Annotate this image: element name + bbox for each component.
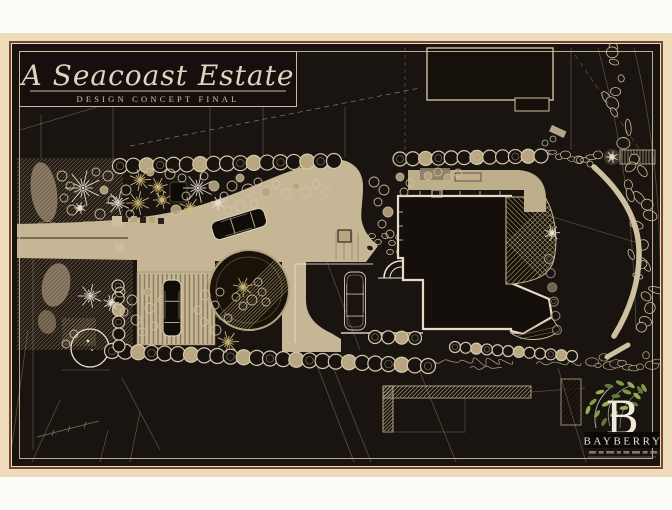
tree-center <box>242 286 244 288</box>
shrub-circle <box>209 181 219 191</box>
hedge-shrub <box>193 157 208 172</box>
hedge-shrub <box>419 151 433 165</box>
tree-center <box>82 187 84 189</box>
hedge-shrub <box>546 269 555 278</box>
hedge-shrub <box>545 255 554 264</box>
hedge-shrub <box>112 304 124 316</box>
shrub-circle <box>292 182 300 190</box>
tree-center <box>551 232 553 234</box>
hedge-shrub <box>395 331 408 344</box>
hedge-shrub <box>471 343 482 354</box>
site-plan-svg: A Seacoast Estate DESIGN CONCEPT FINAL B… <box>0 0 672 510</box>
car-body <box>163 280 181 336</box>
tree-center <box>157 186 159 188</box>
tagline-mark <box>623 451 629 454</box>
hedge-shrub <box>126 158 141 173</box>
hedge-shrub <box>431 151 445 165</box>
hedge-shrub <box>444 151 458 165</box>
tree-center <box>197 187 199 189</box>
hedge-shrub <box>393 152 407 166</box>
hedge-shrub <box>545 349 556 360</box>
hedge-shrub <box>548 283 557 292</box>
hedge-shrub <box>286 154 301 169</box>
shrub-circle <box>146 168 154 176</box>
hedge-shrub <box>369 331 382 344</box>
stone <box>374 239 381 245</box>
hedge-shrub <box>300 154 315 169</box>
tagline-mark <box>606 451 614 454</box>
hedge-shrub <box>503 346 514 357</box>
shrub-circle <box>261 187 271 197</box>
hedge-shrub <box>553 326 562 335</box>
shrub-circle <box>236 174 244 182</box>
neighbor-shed <box>561 379 581 425</box>
hedge-shrub <box>457 151 471 165</box>
hedge-shrub <box>513 346 524 357</box>
hedge-shrub <box>450 342 461 353</box>
tagline-mark <box>650 451 657 454</box>
tree-center <box>110 302 112 304</box>
plan-subtitle: DESIGN CONCEPT FINAL <box>76 94 239 104</box>
shrub-circle <box>144 288 152 296</box>
tree-center <box>217 202 219 204</box>
hedge-shrub <box>470 150 484 164</box>
paver-square <box>112 216 123 227</box>
hedge-shrub <box>327 154 342 169</box>
car-icon <box>163 280 181 336</box>
rock <box>636 364 643 370</box>
tree-center <box>189 207 191 209</box>
hedge-shrub <box>460 342 471 353</box>
hedge-shrub <box>508 150 522 164</box>
plan-title: A Seacoast Estate <box>19 59 295 92</box>
tree-center <box>161 199 163 201</box>
hedge-shrub <box>113 328 125 340</box>
rock <box>593 151 602 159</box>
hedge-shrub <box>551 311 560 320</box>
hedge-shrub <box>481 344 492 355</box>
shrub-circle <box>396 173 404 181</box>
hedge-shrub <box>535 348 546 359</box>
tree-center <box>139 179 141 181</box>
hedge-shrub <box>409 332 422 345</box>
hedge-shrub <box>112 280 124 292</box>
hedge-shrub <box>233 156 248 171</box>
hedge-shrub <box>260 155 275 170</box>
tagline-mark <box>632 451 640 454</box>
hedge-shrub <box>421 359 436 374</box>
rock <box>549 150 557 154</box>
tree-center <box>89 295 91 297</box>
shrub-circle <box>171 205 181 215</box>
logo-brand: BAYBERRY <box>583 436 662 448</box>
stone <box>368 233 375 239</box>
rock <box>595 363 601 367</box>
rock <box>610 87 621 96</box>
framed-landscape-plan-photo: A Seacoast Estate DESIGN CONCEPT FINAL B… <box>0 0 672 510</box>
hedge-shrub <box>220 156 235 171</box>
paver-square <box>149 217 155 223</box>
paver-square <box>131 216 137 222</box>
hedge-shrub <box>549 297 558 306</box>
hedge-shrub <box>534 149 548 163</box>
glow-halo <box>604 149 620 165</box>
hedge-shrub <box>313 154 328 169</box>
hedge-shrub <box>492 345 503 356</box>
tagline-mark <box>599 451 604 454</box>
shrub-circle <box>383 207 393 217</box>
hedge-shrub <box>153 158 168 173</box>
tagline-mark <box>589 451 596 454</box>
tree-center <box>227 341 229 343</box>
tree-center <box>117 202 119 204</box>
hedge-shrub <box>113 159 128 174</box>
paver-square <box>158 218 164 224</box>
tagline-mark <box>643 451 648 454</box>
hedge-shrub <box>382 331 395 344</box>
hedge-shrub <box>206 156 221 171</box>
hedge-shrub <box>496 150 510 164</box>
hedge-shrub <box>246 155 261 170</box>
hedge-shrub <box>406 152 420 166</box>
tree-center <box>137 202 139 204</box>
shrub-circle <box>100 186 108 194</box>
hedge-shrub <box>556 350 567 361</box>
hedge-shrub <box>113 340 125 352</box>
logo-tagline-illegible <box>589 451 666 454</box>
tagline-mark <box>617 451 621 454</box>
hedge-shrub <box>113 316 125 328</box>
hedge-shrub <box>524 347 535 358</box>
hedge-shrub <box>567 351 578 362</box>
hedge-shrub <box>483 150 497 164</box>
shrub-circle <box>444 174 452 182</box>
paver-square <box>338 230 351 242</box>
stone <box>387 249 394 254</box>
hedge-shrub <box>179 157 194 172</box>
tree-center <box>79 207 81 209</box>
hedge-shrub <box>521 149 535 163</box>
shrub-circle <box>424 172 432 180</box>
rock <box>643 352 650 359</box>
hedge-shrub <box>273 155 288 170</box>
title-block: A Seacoast Estate DESIGN CONCEPT FINAL <box>19 52 297 107</box>
paver-square <box>115 243 124 252</box>
paver-square <box>140 217 146 223</box>
